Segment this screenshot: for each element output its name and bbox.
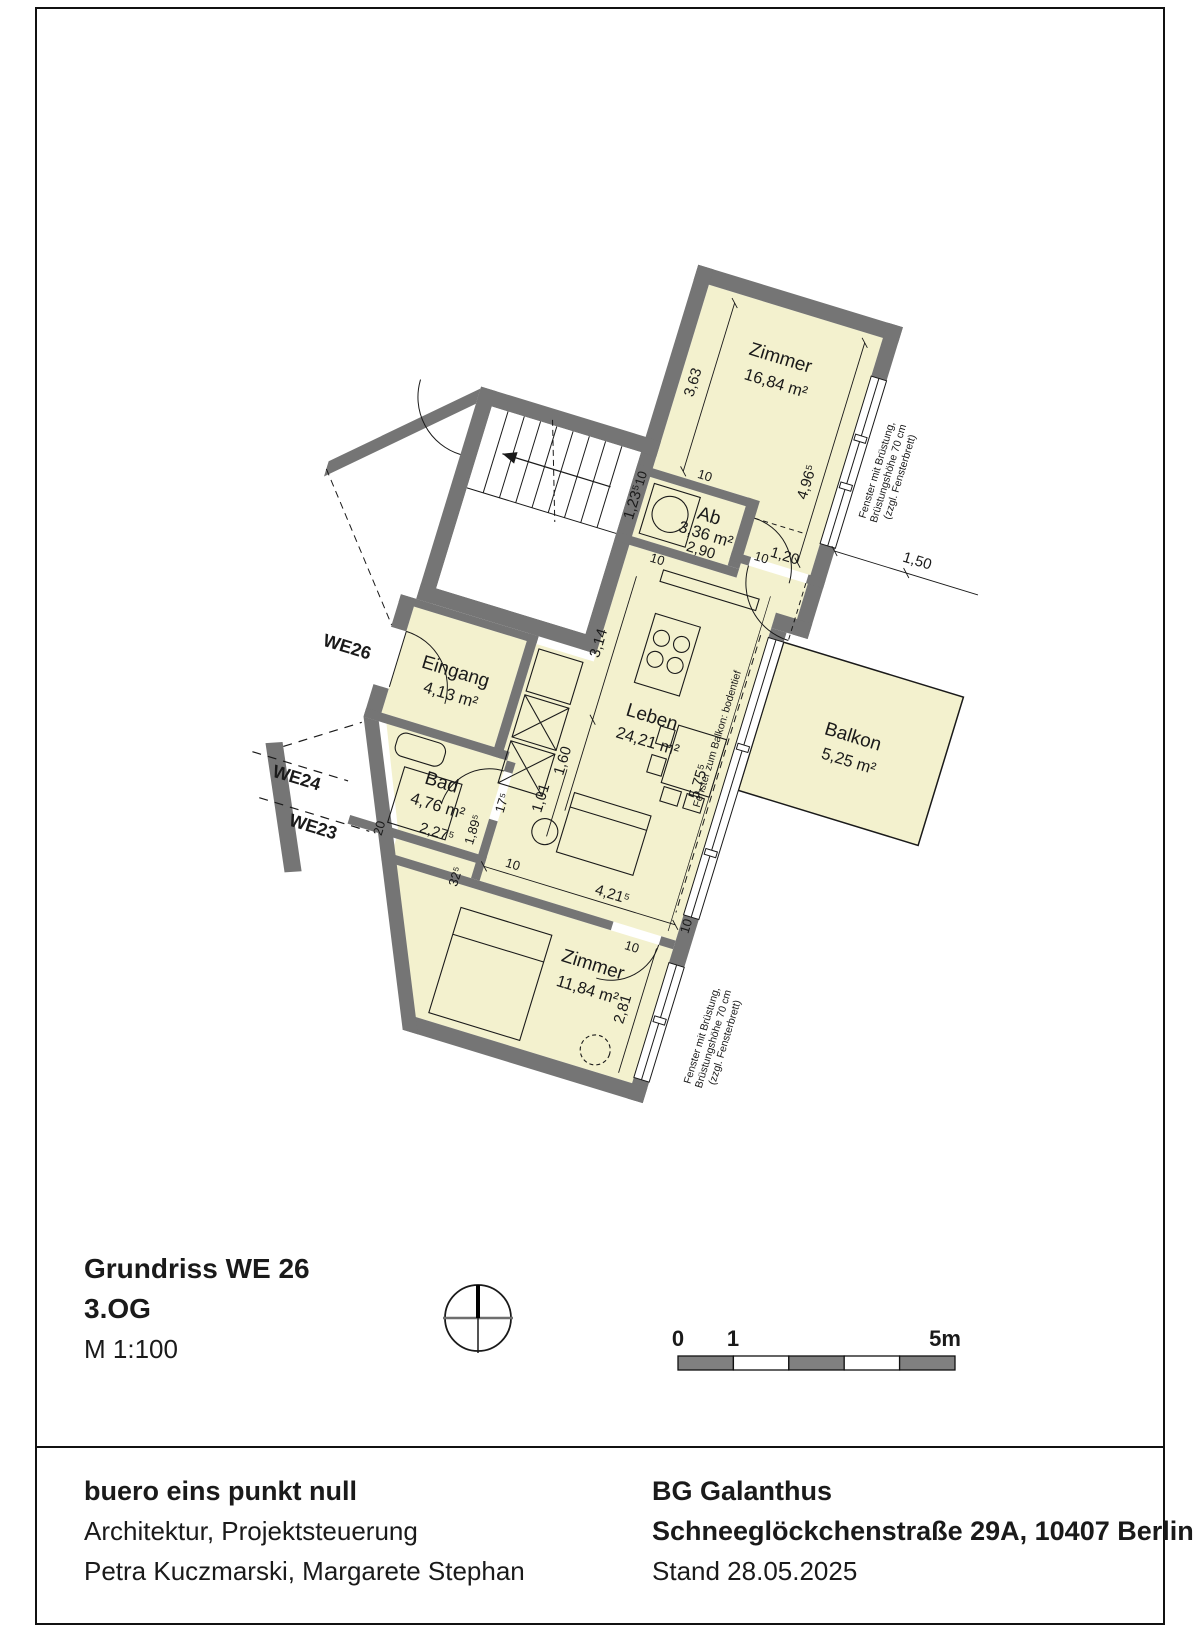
office-name: buero eins punkt null [84, 1476, 357, 1506]
svg-text:1: 1 [727, 1326, 739, 1351]
drawing-floor: 3.OG [84, 1293, 151, 1324]
project-address: Schneeglöckchenstraße 29A, 10407 Berlin [652, 1516, 1194, 1546]
drawing-title: Grundriss WE 26 [84, 1253, 310, 1284]
unit-label-we26: WE26 [321, 630, 374, 663]
office-people: Petra Kuczmarski, Margarete Stephan [84, 1556, 525, 1586]
office-role: Architektur, Projektsteuerung [84, 1516, 418, 1546]
drawing-scale: M 1:100 [84, 1334, 178, 1364]
floorplan-drawing: Zimmer 16,84 m² Ab 3,36 m² 2,90 Leben 24… [176, 178, 1062, 1158]
wall-thickness-label: 10 [752, 548, 770, 567]
project-date: Stand 28.05.2025 [652, 1556, 857, 1586]
scale-bar: 0 1 5m [672, 1326, 961, 1370]
window-annotation-bottom: Fenster mit Brüstung, Brüstungshöhe 70 c… [681, 985, 745, 1093]
svg-text:5m: 5m [929, 1326, 961, 1351]
svg-text:0: 0 [672, 1326, 684, 1351]
north-symbol-icon [443, 1285, 513, 1353]
project-name: BG Galanthus [652, 1476, 832, 1506]
floorplan-sheet: Zimmer 16,84 m² Ab 3,36 m² 2,90 Leben 24… [0, 0, 1200, 1632]
dimension-label: 1,50 [901, 549, 934, 574]
